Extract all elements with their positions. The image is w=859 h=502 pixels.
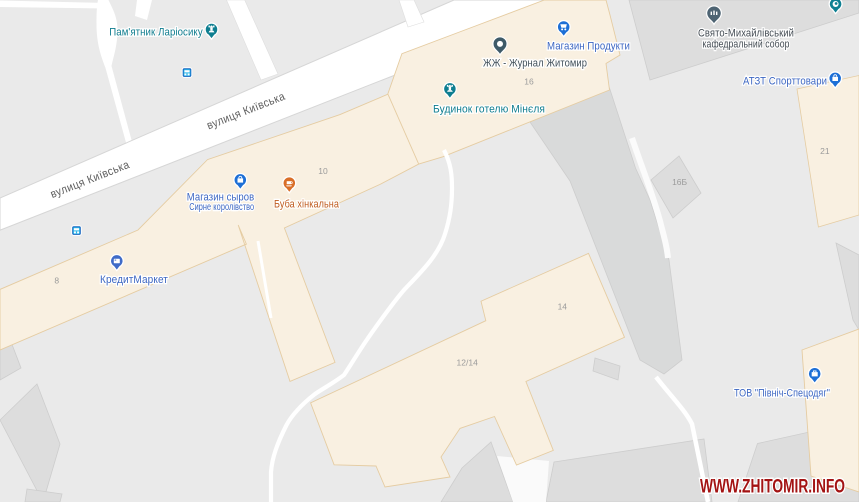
svg-text:КредитМаркет: КредитМаркет — [100, 274, 168, 286]
svg-text:14: 14 — [558, 302, 568, 312]
svg-text:12/14: 12/14 — [457, 358, 479, 368]
svg-text:Сирне королівство: Сирне королівство — [189, 202, 254, 213]
svg-text:16: 16 — [524, 77, 534, 87]
svg-text:Буба хінкальна: Буба хінкальна — [274, 199, 340, 211]
svg-text:21: 21 — [820, 146, 830, 156]
svg-text:Магазин Продукти: Магазин Продукти — [547, 41, 630, 53]
svg-text:Будинок готелю Мінєля: Будинок готелю Мінєля — [433, 104, 545, 116]
svg-text:ТОВ "Північ-Спецодяг": ТОВ "Північ-Спецодяг" — [734, 388, 830, 400]
svg-text:ЖЖ - Журнал Житомир: ЖЖ - Журнал Житомир — [483, 58, 587, 70]
svg-text:16Б: 16Б — [672, 177, 687, 187]
svg-text:кафедральний собор: кафедральний собор — [703, 39, 790, 51]
svg-text:АТЗТ Спорттовари: АТЗТ Спорттовари — [743, 76, 827, 88]
svg-text:10: 10 — [318, 166, 328, 176]
svg-text:Пам'ятник Ларіосику: Пам'ятник Ларіосику — [109, 27, 203, 39]
svg-text:8: 8 — [54, 276, 59, 286]
svg-text:WWW.ZHITOMIR.INFO: WWW.ZHITOMIR.INFO — [700, 477, 845, 498]
